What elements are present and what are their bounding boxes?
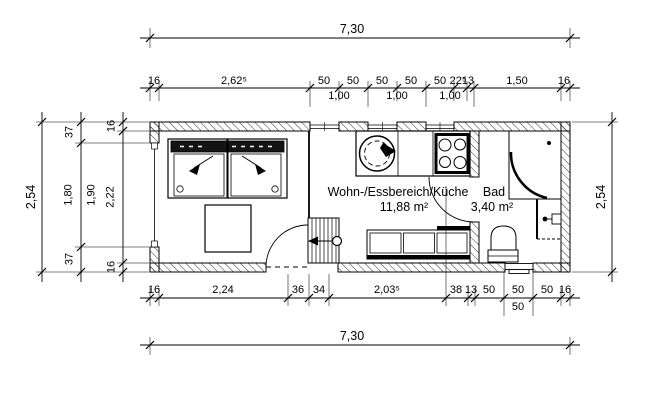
dim-top-chain-6: 50	[434, 76, 446, 87]
dim-bottom-chain-5: 38	[450, 285, 462, 296]
room-label-living: Wohn-/Essbereich/Küche	[328, 186, 469, 199]
dim-bottom-chain-2: 36	[292, 285, 304, 296]
dim-top-chain-8: 13	[462, 76, 474, 87]
bath-door	[429, 177, 474, 222]
side-table	[205, 205, 251, 252]
dim-left-outer-chain-0: 37	[65, 126, 76, 138]
double-bed	[168, 139, 287, 198]
dim-bottom-chain-6: 13	[465, 285, 477, 296]
dim-top-total: 7,30	[340, 23, 364, 36]
dim-top-chain-3: 50	[347, 76, 359, 87]
dim-top-chain-5: 50	[405, 76, 417, 87]
dim-bottom-chain-7: 50	[483, 285, 495, 296]
dim-left-inner-chain-1: 2,22	[106, 186, 117, 207]
kitchen-counter	[356, 131, 470, 176]
dim-left-mid: 1,90	[87, 184, 98, 205]
dim-left-total: 2,54	[25, 185, 38, 209]
dim-top-chain-1: 2,62⁵	[221, 76, 247, 87]
dim-left-outer-chain-1: 1,80	[64, 184, 75, 205]
dim-left-inner-chain-2: 16	[107, 261, 118, 273]
cooktop	[436, 135, 468, 173]
dim-top-chain-0: 16	[148, 76, 160, 87]
dim-top-chain-9: 1,50	[506, 76, 527, 87]
dim-bottom-chain-10: 16	[559, 285, 571, 296]
corner-shower	[509, 131, 561, 199]
dim-top-chain-2: 50	[318, 76, 330, 87]
space-saver-stairs	[308, 218, 342, 263]
floor-plan-drawing	[0, 0, 654, 404]
dim-top-sub-0: 1,00	[328, 91, 349, 102]
toilet	[488, 226, 518, 262]
dim-bottom-chain-8: 50	[512, 285, 524, 296]
entrance-door	[266, 225, 308, 267]
dim-bottom-chain-9: 50	[541, 285, 553, 296]
dim-bottom-sub-0: 50	[512, 302, 524, 313]
floor-plan-canvas: 7,30 16 2,62⁵ 50 50 50 50 50 22⁵ 13 1,50…	[0, 0, 654, 404]
dim-right-total: 2,54	[595, 185, 608, 209]
dim-top-sub-2: 1,00	[439, 91, 460, 102]
washbasin	[537, 199, 561, 239]
sink	[360, 136, 397, 171]
dim-top-sub-1: 1,00	[386, 91, 407, 102]
dim-top-chain-10: 16	[558, 76, 570, 87]
dim-bottom-chain-3: 34	[313, 285, 325, 296]
dim-bottom-chain-0: 16	[148, 285, 160, 296]
room-label-bath: Bad	[483, 186, 505, 199]
dim-left-outer-chain-2: 37	[65, 253, 76, 265]
dim-left-inner-chain-0: 16	[107, 120, 118, 132]
dim-top-chain-4: 50	[376, 76, 388, 87]
dim-bottom-chain-4: 2,03⁵	[374, 285, 400, 296]
room-area-bath: 3,40 m²	[471, 201, 513, 214]
dim-bottom-total: 7,30	[340, 330, 364, 343]
dim-bottom-chain-1: 2,24	[212, 285, 233, 296]
dining-bench	[367, 226, 470, 259]
room-area-living: 11,88 m²	[380, 201, 428, 214]
